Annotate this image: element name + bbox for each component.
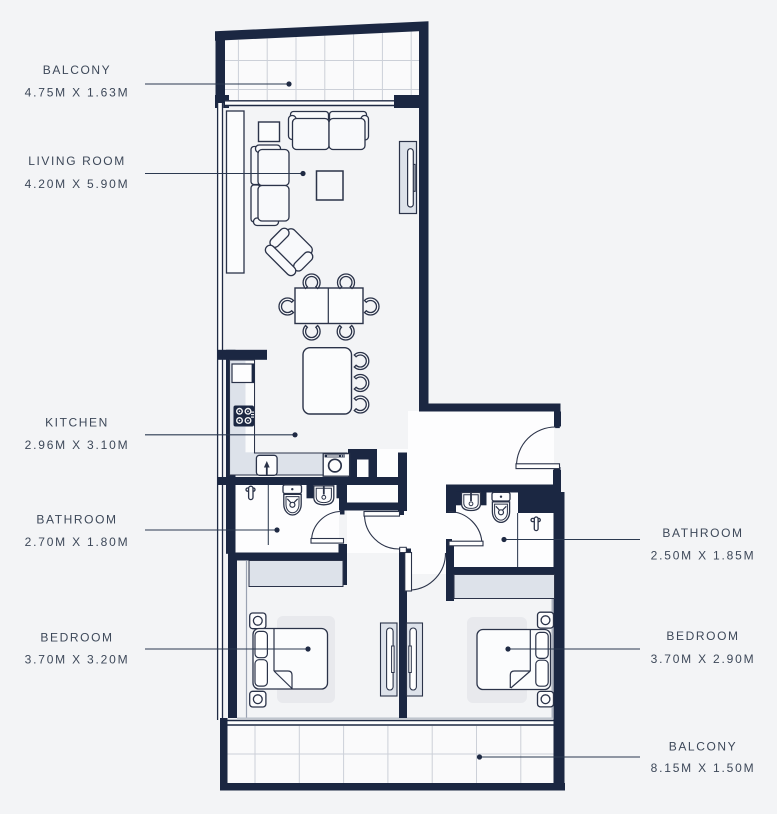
svg-text:3.70M X 3.20M: 3.70M X 3.20M bbox=[25, 652, 130, 666]
svg-text:2.96M X 3.10M: 2.96M X 3.10M bbox=[25, 438, 130, 452]
svg-text:BATHROOM: BATHROOM bbox=[36, 512, 117, 526]
svg-text:BEDROOM: BEDROOM bbox=[40, 630, 113, 644]
svg-text:BEDROOM: BEDROOM bbox=[666, 629, 739, 643]
svg-text:2.50M X 1.85M: 2.50M X 1.85M bbox=[651, 548, 756, 562]
svg-text:LIVING ROOM: LIVING ROOM bbox=[28, 154, 126, 168]
svg-text:8.15M X 1.50M: 8.15M X 1.50M bbox=[651, 761, 756, 775]
svg-text:4.75M X 1.63M: 4.75M X 1.63M bbox=[25, 85, 130, 99]
svg-text:BALCONY: BALCONY bbox=[669, 739, 738, 753]
svg-text:BATHROOM: BATHROOM bbox=[662, 526, 743, 540]
svg-text:KITCHEN: KITCHEN bbox=[45, 415, 109, 429]
svg-text:3.70M X 2.90M: 3.70M X 2.90M bbox=[651, 652, 756, 666]
svg-text:BALCONY: BALCONY bbox=[43, 63, 112, 77]
svg-text:4.20M X 5.90M: 4.20M X 5.90M bbox=[25, 177, 130, 191]
svg-text:2.70M X 1.80M: 2.70M X 1.80M bbox=[25, 535, 130, 549]
